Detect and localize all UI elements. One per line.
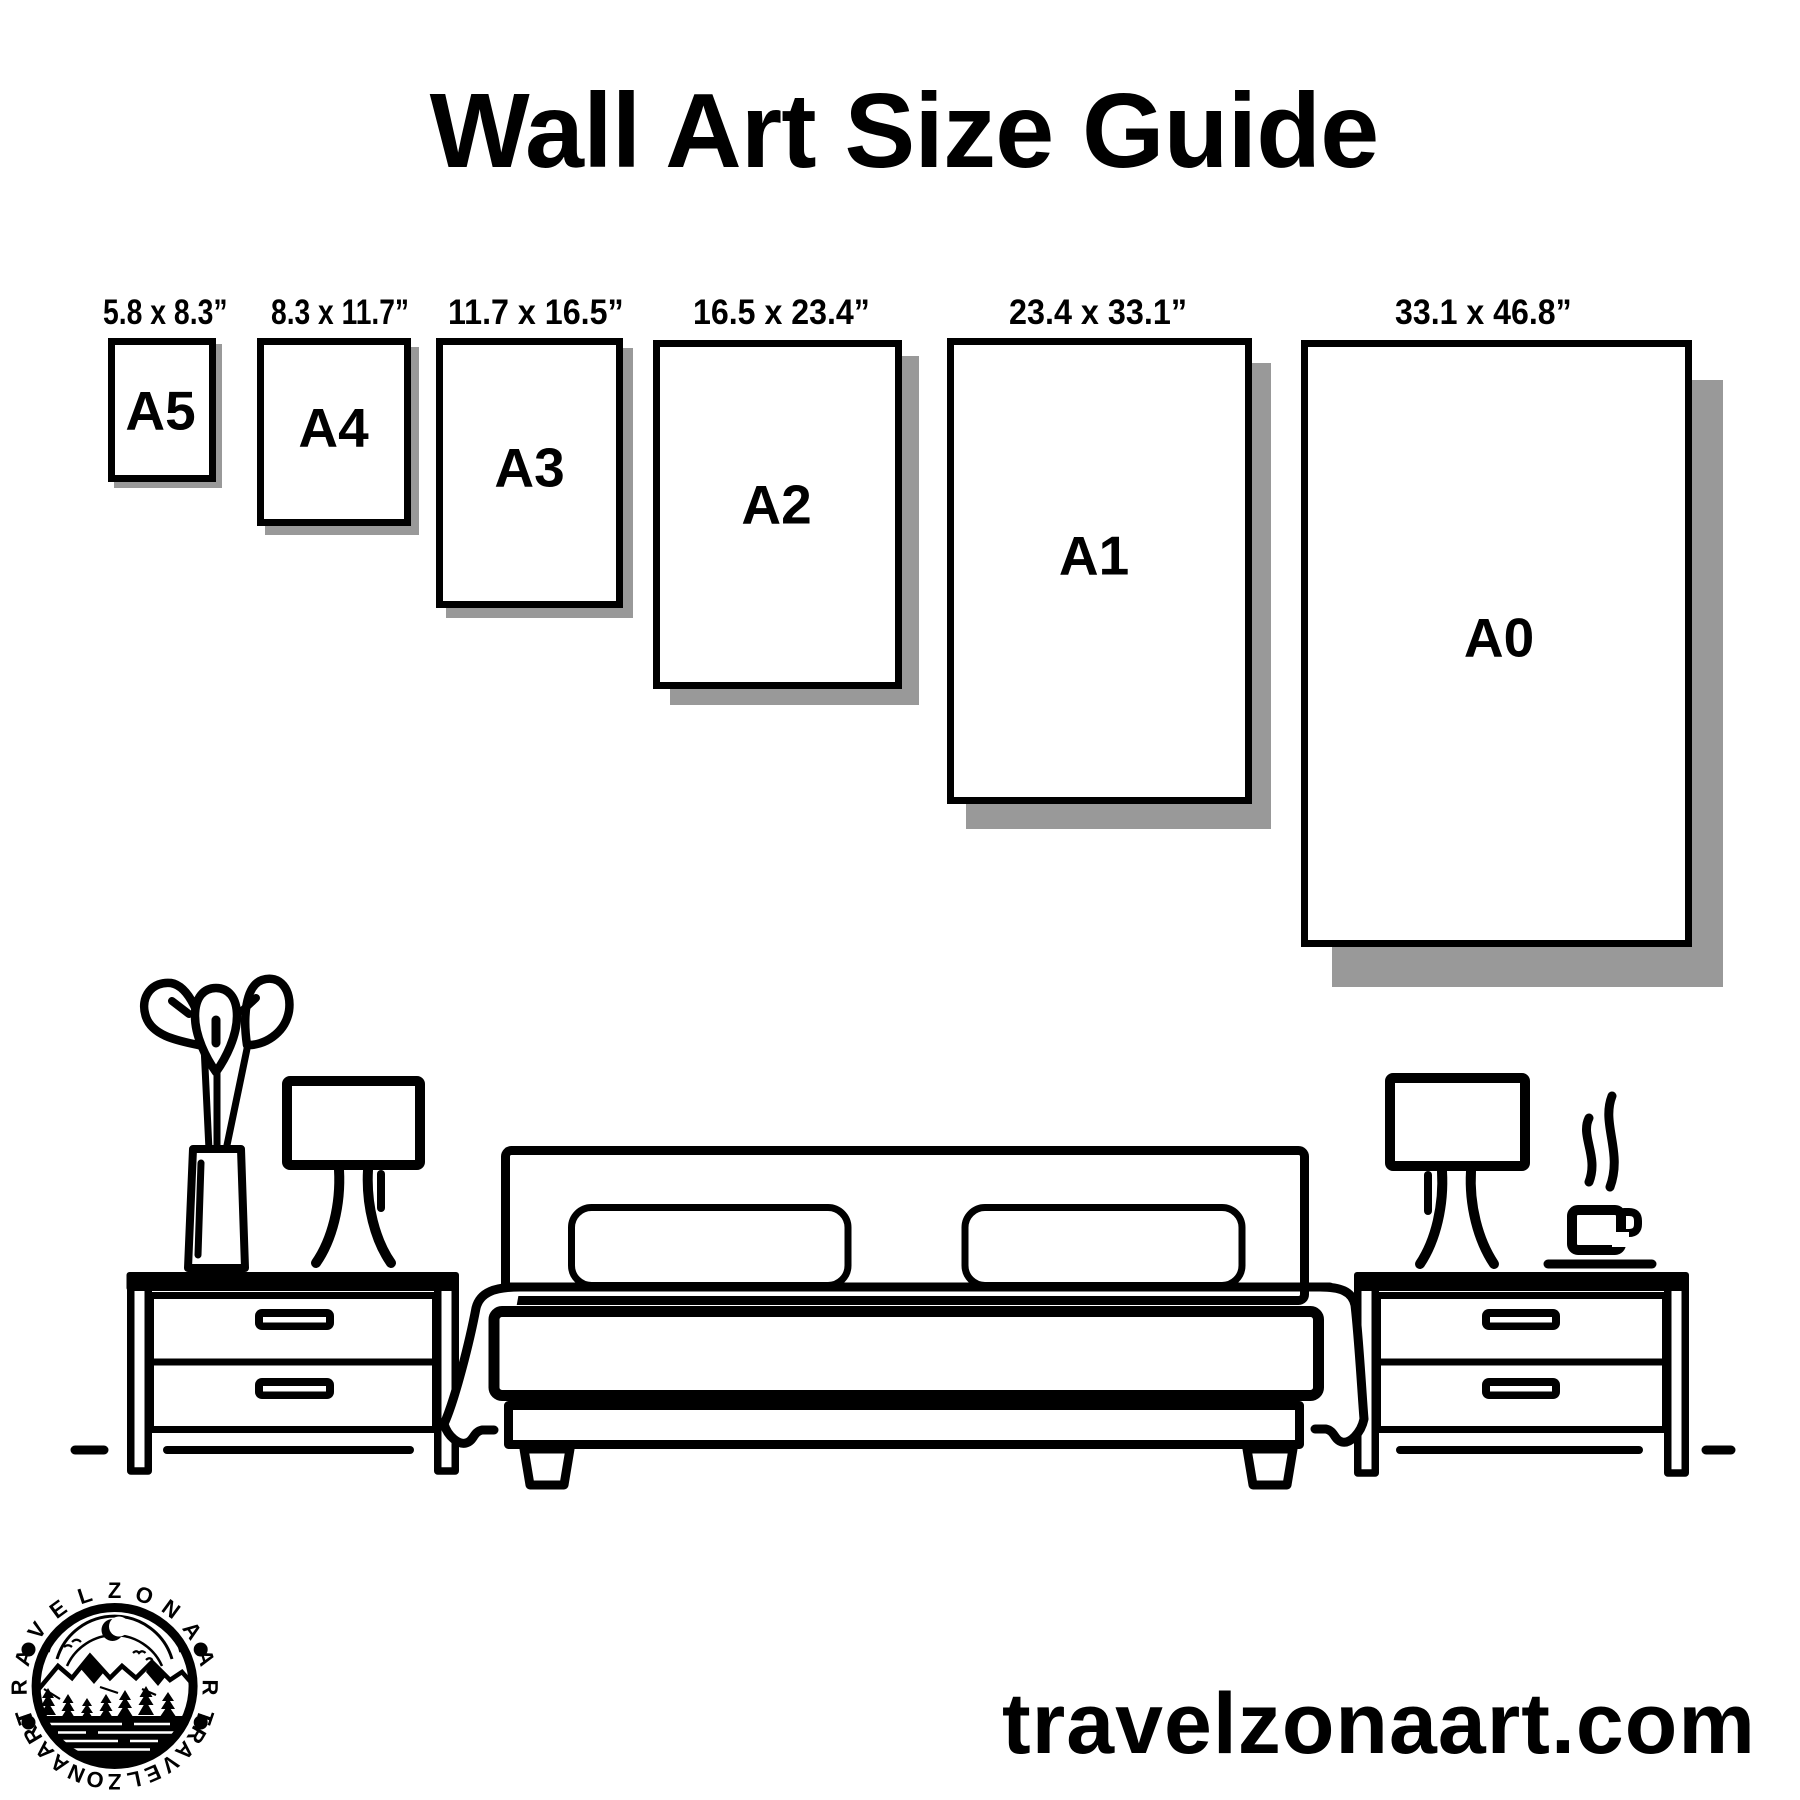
- svg-text:R: R: [6, 1679, 31, 1695]
- svg-text:Z: Z: [108, 1578, 121, 1603]
- svg-text:L: L: [75, 1581, 96, 1609]
- svg-text:L: L: [125, 1766, 143, 1793]
- svg-text:O: O: [132, 1581, 156, 1610]
- svg-text:Z: Z: [108, 1769, 121, 1794]
- svg-text:R: R: [197, 1679, 222, 1695]
